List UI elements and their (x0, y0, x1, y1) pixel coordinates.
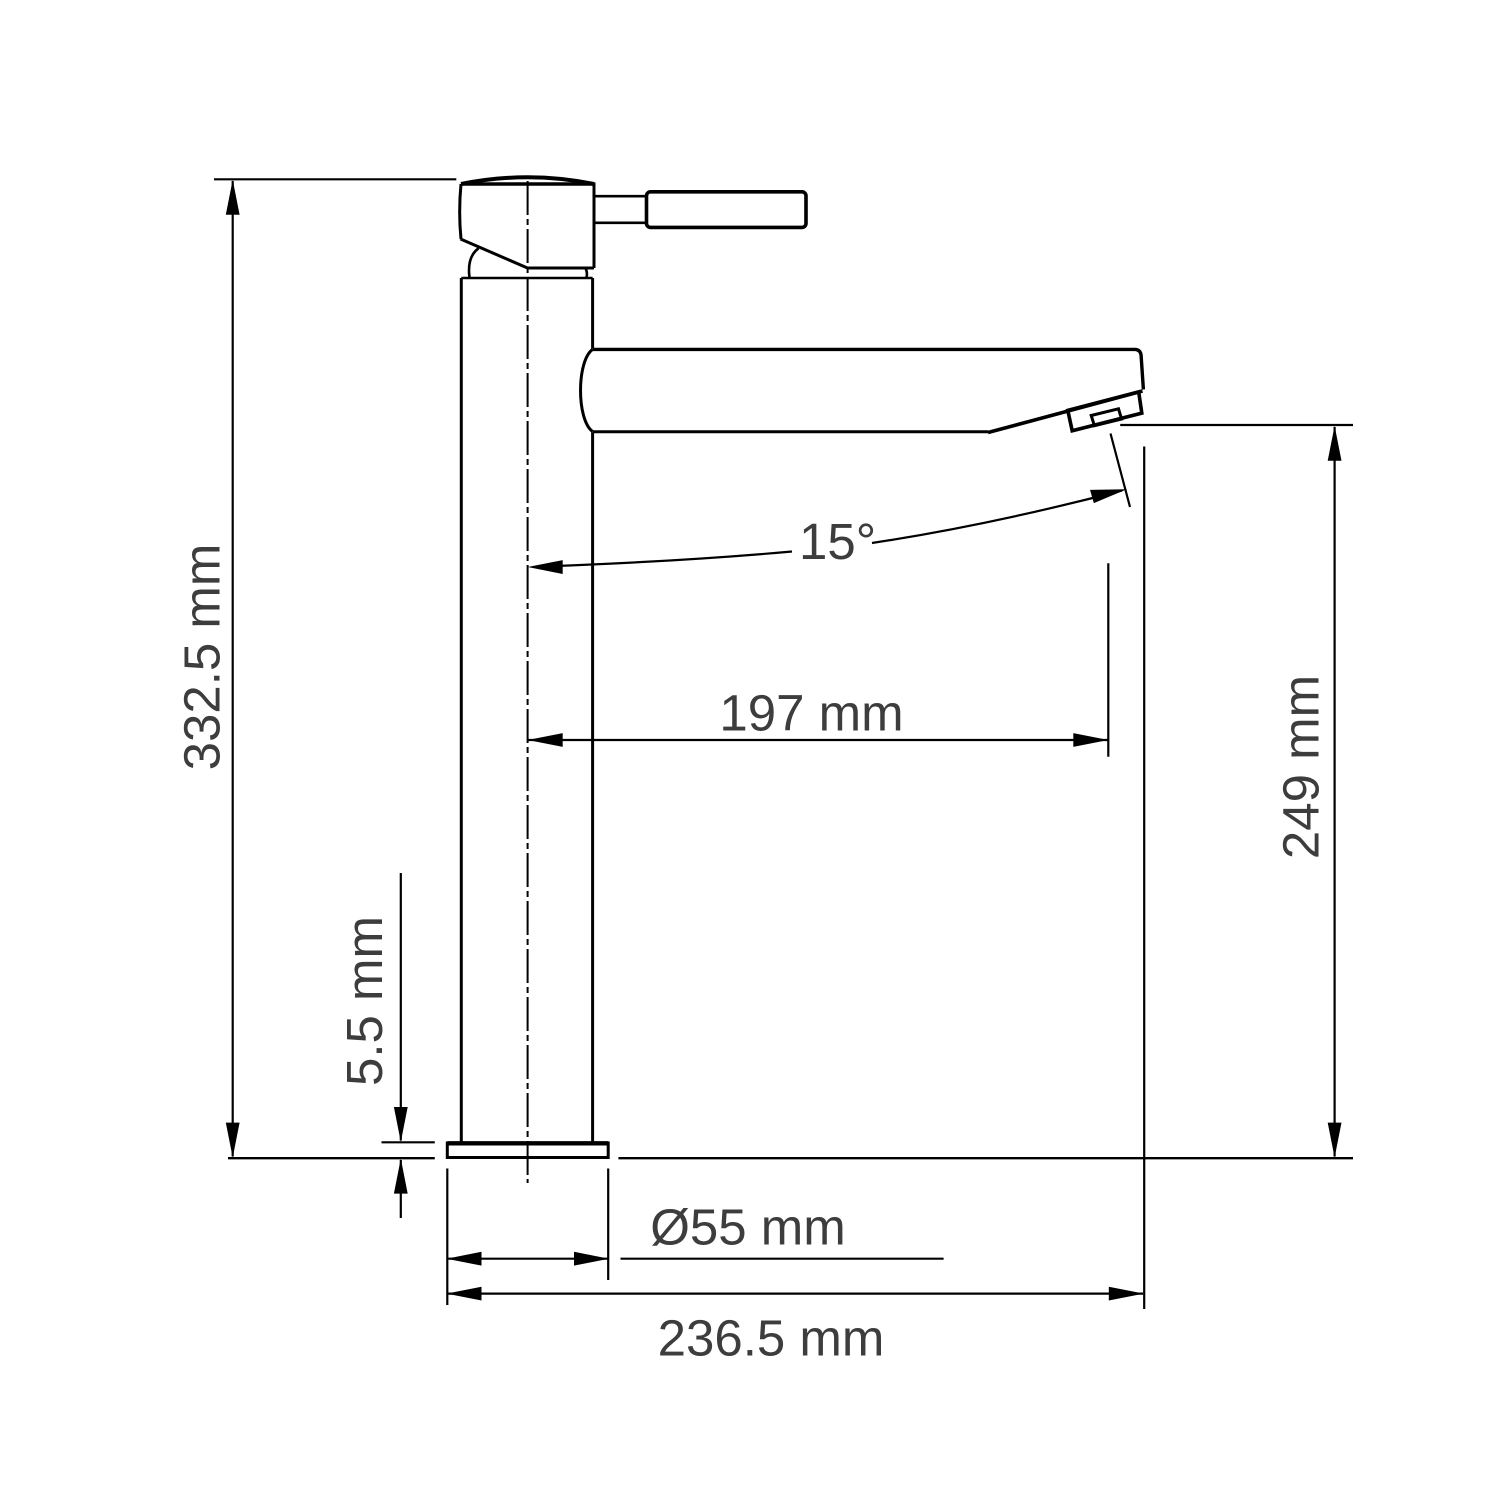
svg-text:Ø55 mm: Ø55 mm (650, 1199, 846, 1256)
svg-text:15°: 15° (799, 513, 876, 570)
svg-text:5.5 mm: 5.5 mm (336, 916, 393, 1086)
svg-text:197 mm: 197 mm (719, 685, 903, 742)
svg-text:332.5 mm: 332.5 mm (174, 544, 231, 771)
svg-text:236.5 mm: 236.5 mm (658, 1310, 885, 1367)
svg-text:249 mm: 249 mm (1273, 675, 1330, 859)
